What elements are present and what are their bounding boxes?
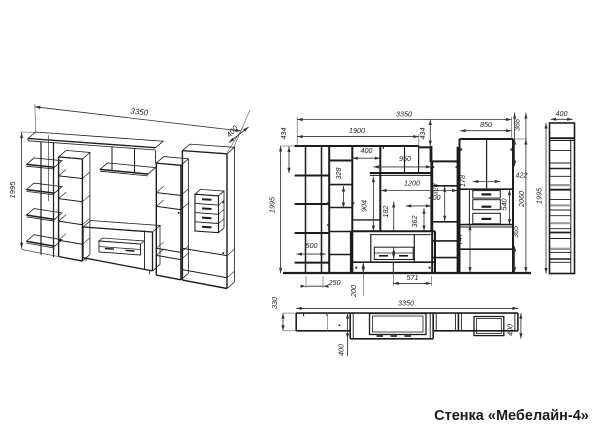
svg-text:182: 182 bbox=[381, 206, 390, 218]
svg-text:400: 400 bbox=[506, 324, 515, 336]
svg-text:328: 328 bbox=[334, 168, 343, 180]
svg-text:3350: 3350 bbox=[396, 110, 412, 119]
svg-text:362: 362 bbox=[410, 216, 419, 228]
svg-text:904: 904 bbox=[360, 200, 369, 212]
svg-text:500: 500 bbox=[306, 241, 318, 250]
svg-text:1900: 1900 bbox=[349, 126, 365, 135]
svg-text:200: 200 bbox=[349, 285, 358, 298]
svg-text:434: 434 bbox=[418, 128, 427, 140]
svg-text:3350: 3350 bbox=[398, 298, 414, 307]
svg-text:747: 747 bbox=[455, 232, 464, 245]
svg-text:1995: 1995 bbox=[268, 196, 277, 213]
svg-text:850: 850 bbox=[480, 120, 492, 129]
svg-text:178: 178 bbox=[458, 175, 467, 187]
svg-text:950: 950 bbox=[399, 154, 411, 163]
svg-text:1995: 1995 bbox=[8, 181, 17, 199]
svg-text:1995: 1995 bbox=[535, 187, 544, 204]
svg-text:400: 400 bbox=[556, 109, 568, 118]
svg-text:328: 328 bbox=[431, 183, 440, 195]
svg-text:330: 330 bbox=[270, 297, 279, 309]
svg-text:2060: 2060 bbox=[517, 191, 526, 208]
svg-text:365: 365 bbox=[511, 225, 520, 238]
svg-text:571: 571 bbox=[407, 273, 419, 282]
svg-text:366: 366 bbox=[513, 119, 522, 131]
svg-text:400: 400 bbox=[361, 146, 373, 155]
svg-text:Стенка «Мебелайн-4»: Стенка «Мебелайн-4» bbox=[434, 408, 589, 424]
svg-text:250: 250 bbox=[328, 278, 341, 287]
svg-text:540: 540 bbox=[500, 199, 509, 211]
svg-text:434: 434 bbox=[279, 128, 288, 140]
svg-text:1200: 1200 bbox=[404, 178, 420, 187]
svg-text:400: 400 bbox=[337, 344, 346, 356]
